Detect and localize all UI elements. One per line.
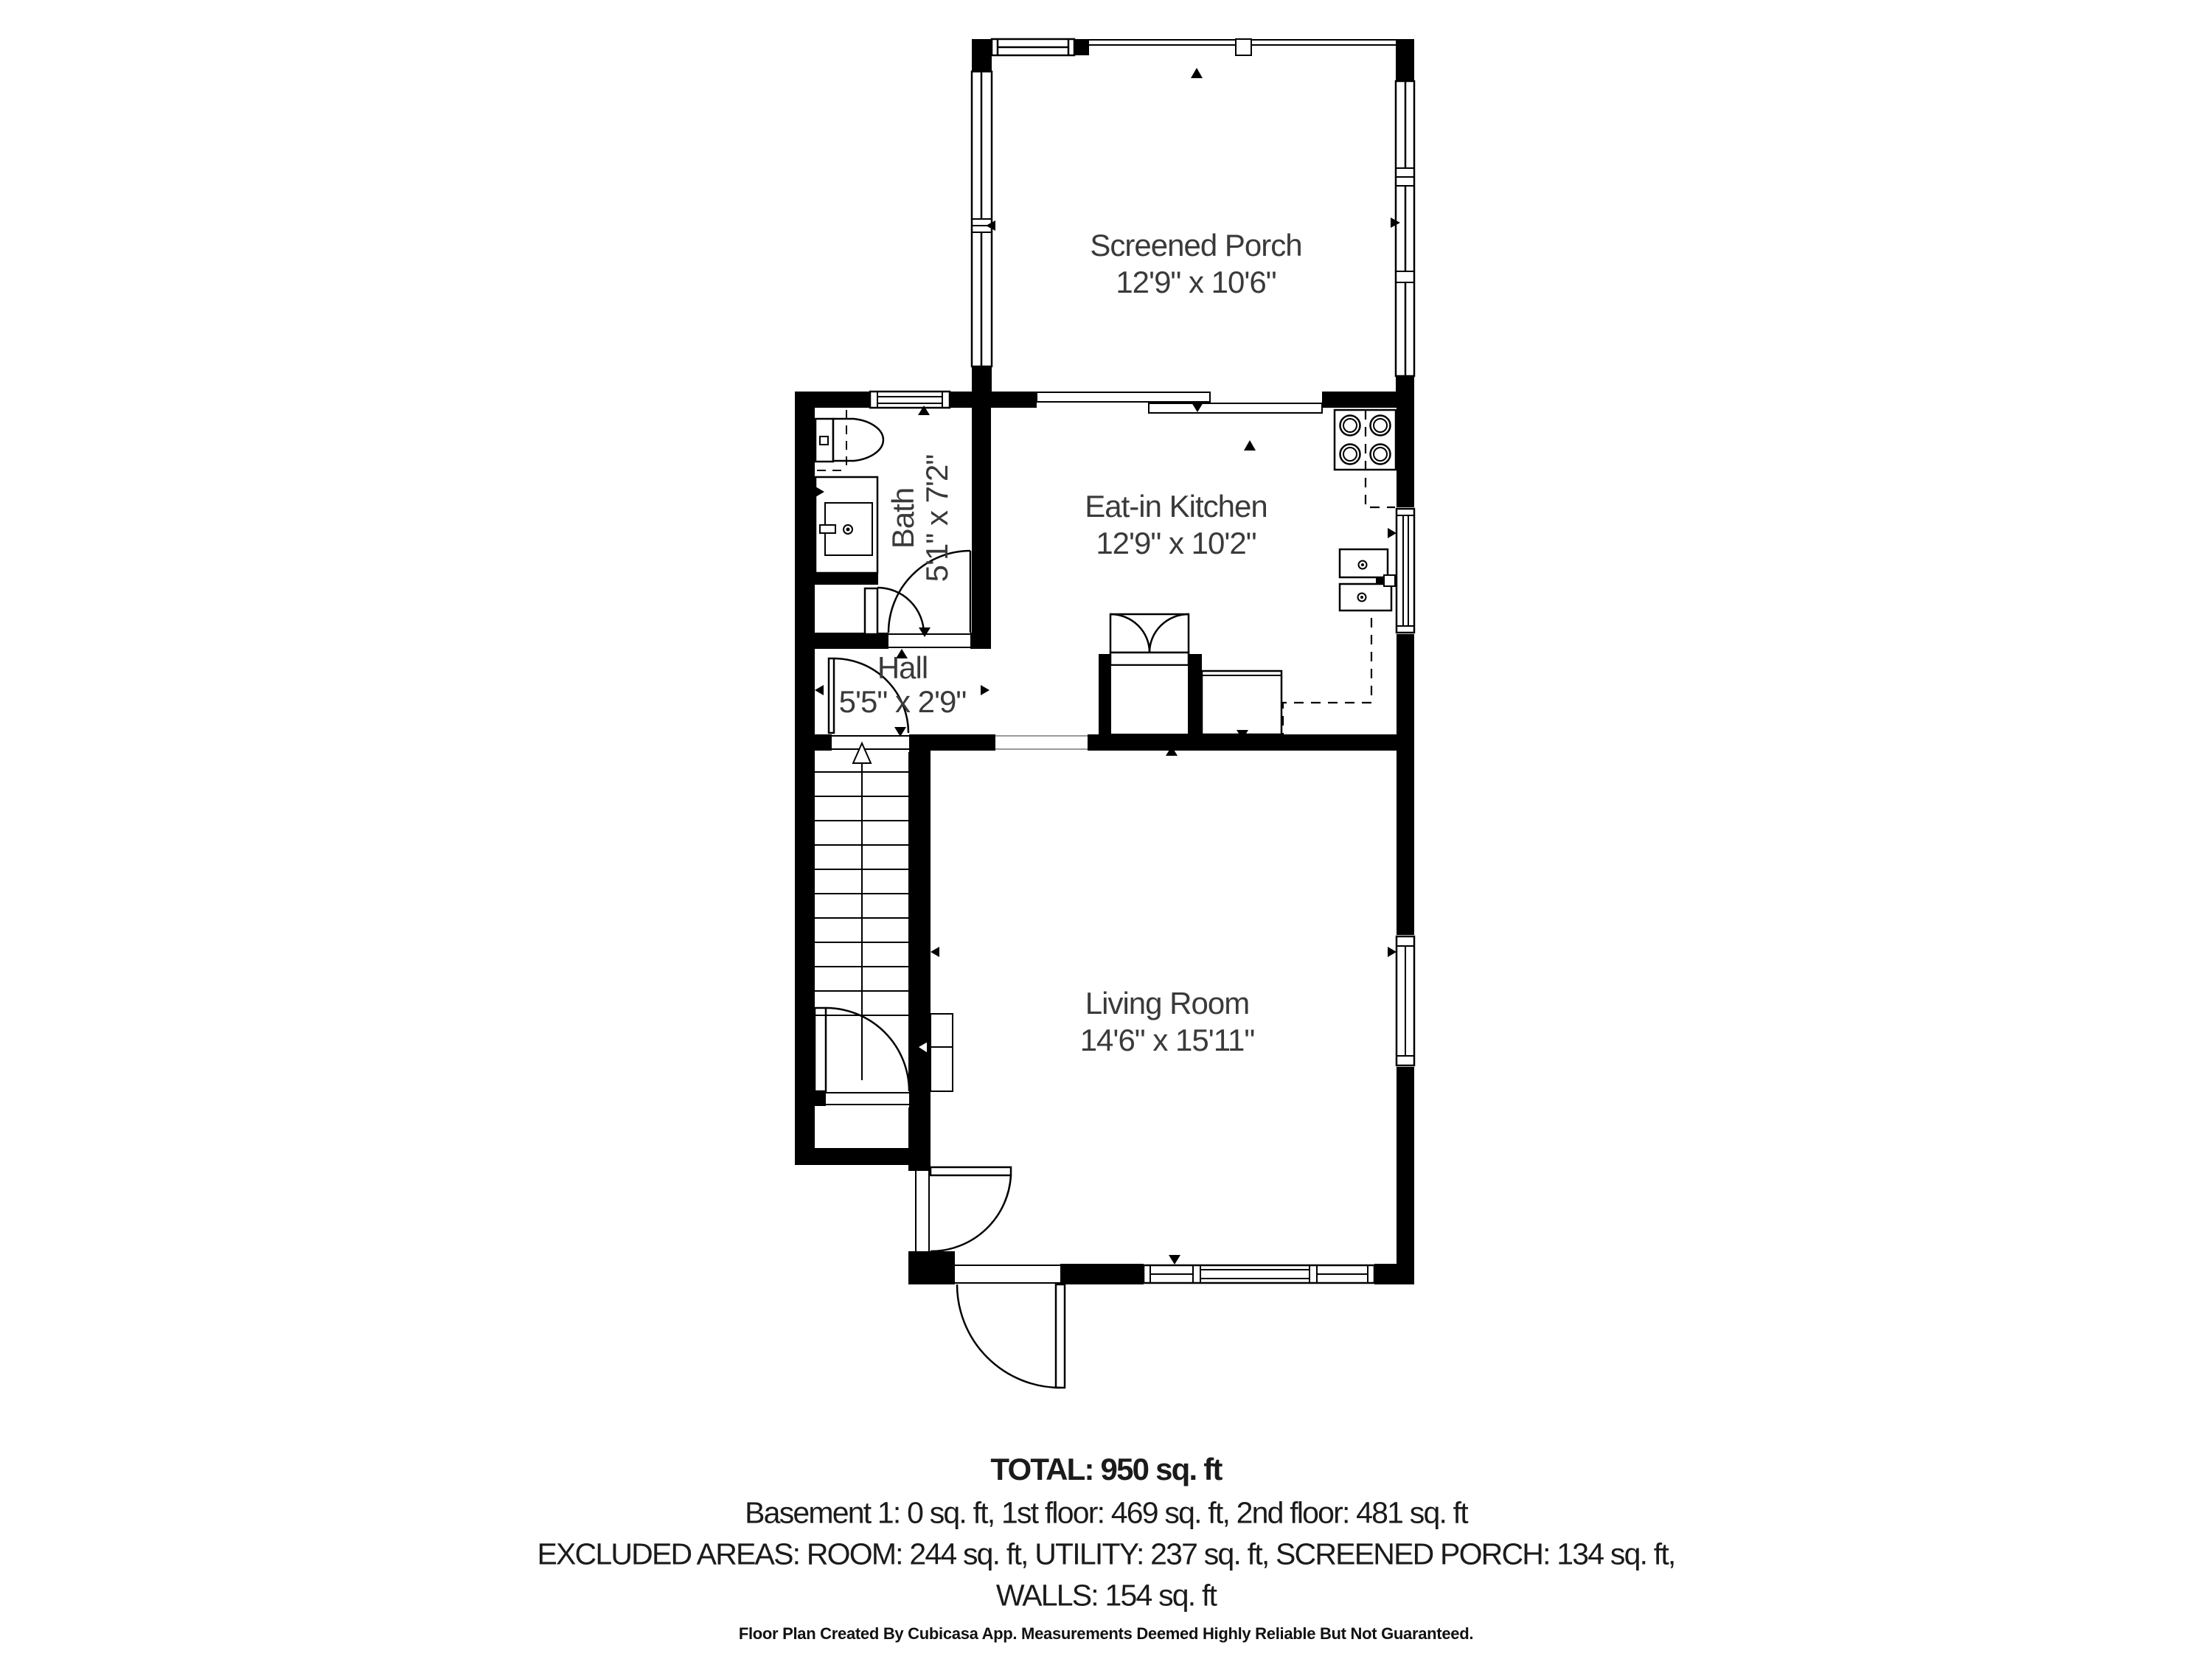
left-exterior-wall: [795, 392, 815, 1165]
marker-right-icon: [981, 685, 990, 695]
hall-door-leaf: [829, 658, 834, 733]
room-dims: 14'6" x 15'11": [1080, 1022, 1255, 1059]
cased-opening: [995, 733, 1088, 752]
summary-excluded: EXCLUDED AREAS: ROOM: 244 sq. ft, UTILIT…: [0, 1537, 2212, 1572]
marker-left-icon: [815, 685, 824, 695]
understair-door-arc: [826, 1008, 909, 1091]
side-door-leaf: [931, 1167, 1011, 1175]
room-name: Screened Porch: [1090, 227, 1301, 264]
room-name: Eat-in Kitchen: [1085, 488, 1267, 525]
vanity-stub-wall: [815, 573, 878, 585]
closet-stub-left: [1099, 654, 1110, 734]
room-dims: 12'9" x 10'2": [1085, 525, 1267, 562]
kitchen-faucet-icon: [1376, 577, 1384, 584]
room-name: Living Room: [1080, 985, 1255, 1022]
closet-front: [1110, 653, 1189, 665]
sliding-door-panel: [1037, 392, 1210, 402]
room-label-screened-porch: Screened Porch 12'9" x 10'6": [1090, 227, 1301, 301]
summary-excluded-cont: WALLS: 154 sq. ft: [0, 1579, 2212, 1613]
room-label-hall: Hall 5'5" x 2'9": [839, 651, 967, 719]
closet-bottom-wall: [795, 1148, 931, 1165]
marker-up-icon: [1244, 440, 1256, 451]
room-dims: 5'1" x 7'2": [920, 455, 954, 582]
porch-top-mullion: [1074, 39, 1089, 55]
room-label-bath: Bath 5'1" x 7'2": [886, 455, 954, 582]
room-label-living-room: Living Room 14'6" x 15'11": [1080, 985, 1255, 1059]
summary-floors: Basement 1: 0 sq. ft, 1st floor: 469 sq.…: [0, 1496, 2212, 1531]
room-dims: 12'9" x 10'6": [1090, 264, 1301, 301]
kitchen-window: [1397, 509, 1414, 633]
disclaimer-text: Floor Plan Created By Cubicasa App. Meas…: [0, 1624, 2212, 1644]
bath-window: [870, 392, 950, 408]
room-dims: 5'5" x 2'9": [839, 685, 967, 719]
room-name: Hall: [839, 651, 967, 685]
marker-left-icon: [931, 947, 939, 957]
marker-up-icon: [1191, 68, 1203, 78]
porch-screen-step: [1236, 39, 1251, 55]
closet-stub-right: [1189, 654, 1202, 734]
porch-post-top-right: [1396, 39, 1414, 81]
toilet-bowl-icon: [833, 419, 883, 461]
kitchen-fixtures: [1202, 410, 1396, 734]
side-door-arc: [931, 1175, 1011, 1251]
summary-total: TOTAL: 950 sq. ft: [0, 1452, 2212, 1487]
kitchen-faucet-icon: [1384, 575, 1395, 586]
understair-door-leaf: [815, 1008, 826, 1091]
front-door-arc: [957, 1284, 1060, 1388]
sliding-door: [1037, 390, 1322, 413]
room-name: Bath: [886, 455, 920, 582]
dishwasher-icon: [1202, 671, 1281, 734]
porch-post-top-left: [972, 39, 992, 72]
room-label-eat-in-kitchen: Eat-in Kitchen 12'9" x 10'2": [1085, 488, 1267, 562]
closet-interior: [1110, 665, 1189, 734]
door-thresholds: [826, 631, 1060, 1286]
bath-fixtures: [815, 410, 883, 573]
stair-side-niche: [931, 1014, 953, 1091]
counter-dashes: [1283, 618, 1371, 734]
front-door-leaf: [1056, 1284, 1065, 1388]
floor-plan-page: Screened Porch 12'9" x 10'6" Eat-in Kitc…: [0, 0, 2212, 1659]
bath-niche-door-leaf: [865, 588, 877, 634]
vanity-faucet-icon: [820, 525, 835, 533]
sliding-door-panel: [1149, 403, 1322, 413]
staircase: [815, 743, 953, 1091]
toilet-flush-icon: [820, 437, 828, 445]
porch-screen-walls: [972, 39, 1414, 376]
bath-niche-door-arc: [877, 588, 924, 634]
bath-right-wall: [972, 408, 991, 649]
